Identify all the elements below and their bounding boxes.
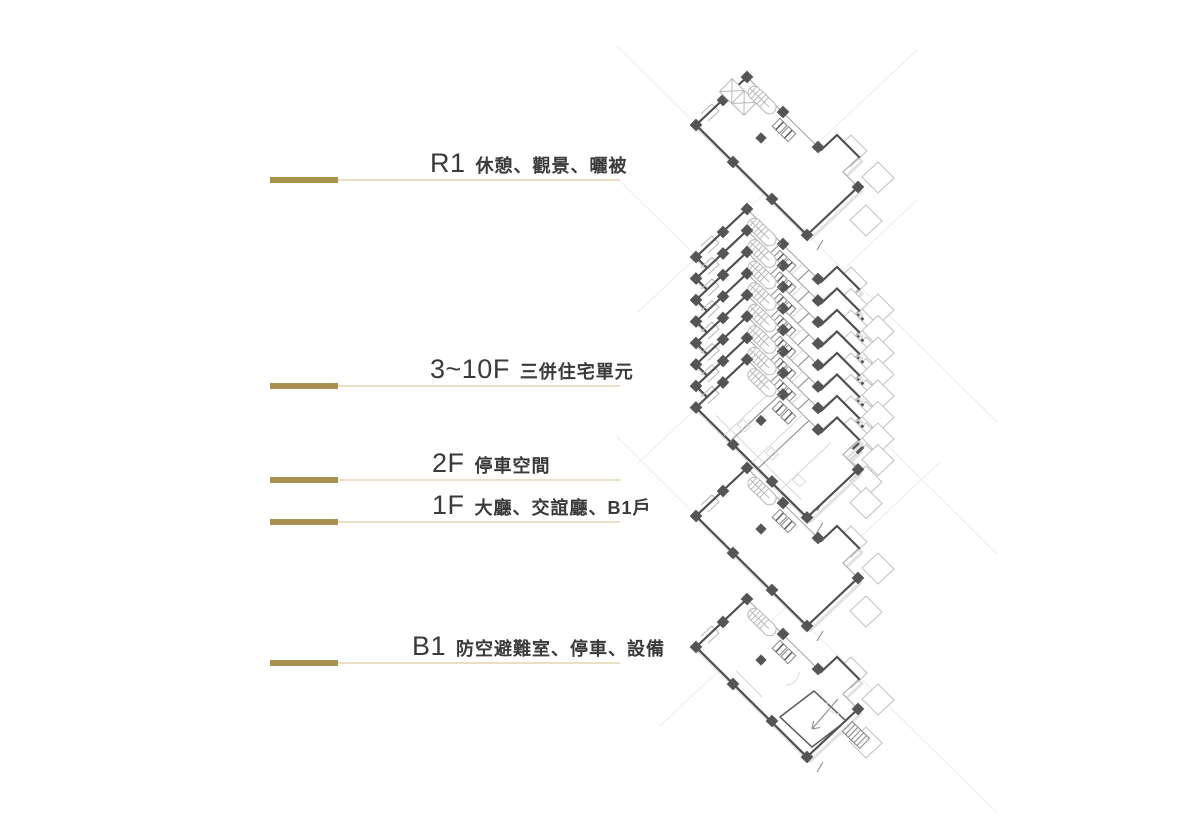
floor-code-2f: 2F <box>432 448 465 479</box>
floor-marker-2f <box>270 477 620 483</box>
floor-leader-line <box>338 179 620 181</box>
label-row-r1: R1 休憩、觀景、曬被 <box>270 148 620 188</box>
floor-labels: R1 休憩、觀景、曬被 3~10F 三併住宅單元 2F 停車空間 1F <box>0 0 1190 840</box>
floor-leader-line <box>338 521 620 523</box>
floor-marker-bar <box>270 383 338 389</box>
floor-code-r1: R1 <box>430 148 466 179</box>
floor-desc-r1: 休憩、觀景、曬被 <box>476 152 628 178</box>
label-row-3-10f: 3~10F 三併住宅單元 <box>270 354 620 394</box>
floor-marker-1f <box>270 519 620 525</box>
floor-code-b1: B1 <box>412 631 446 662</box>
floor-desc-b1: 防空避難室、停車、設備 <box>456 635 665 661</box>
floor-desc-3-10f: 三併住宅單元 <box>520 358 634 384</box>
label-row-b1: B1 防空避難室、停車、設備 <box>270 631 620 671</box>
floor-marker-bar <box>270 177 338 183</box>
floor-leader-line <box>338 385 620 387</box>
floor-code-1f: 1F <box>432 490 465 521</box>
floor-leader-line <box>338 662 620 664</box>
floor-leader-line <box>338 479 620 481</box>
floor-desc-2f: 停車空間 <box>475 452 551 478</box>
floor-marker-bar <box>270 477 338 483</box>
label-row-2f: 2F 停車空間 <box>270 448 620 488</box>
floor-marker-b1 <box>270 660 620 666</box>
floor-marker-3-10f <box>270 383 620 389</box>
floor-marker-bar <box>270 519 338 525</box>
floor-desc-1f: 大廳、交誼廳、B1戶 <box>475 494 652 520</box>
floor-code-3-10f: 3~10F <box>430 354 510 385</box>
floor-marker-bar <box>270 660 338 666</box>
label-row-1f: 1F 大廳、交誼廳、B1戶 <box>270 490 620 530</box>
floor-marker-r1 <box>270 177 620 183</box>
